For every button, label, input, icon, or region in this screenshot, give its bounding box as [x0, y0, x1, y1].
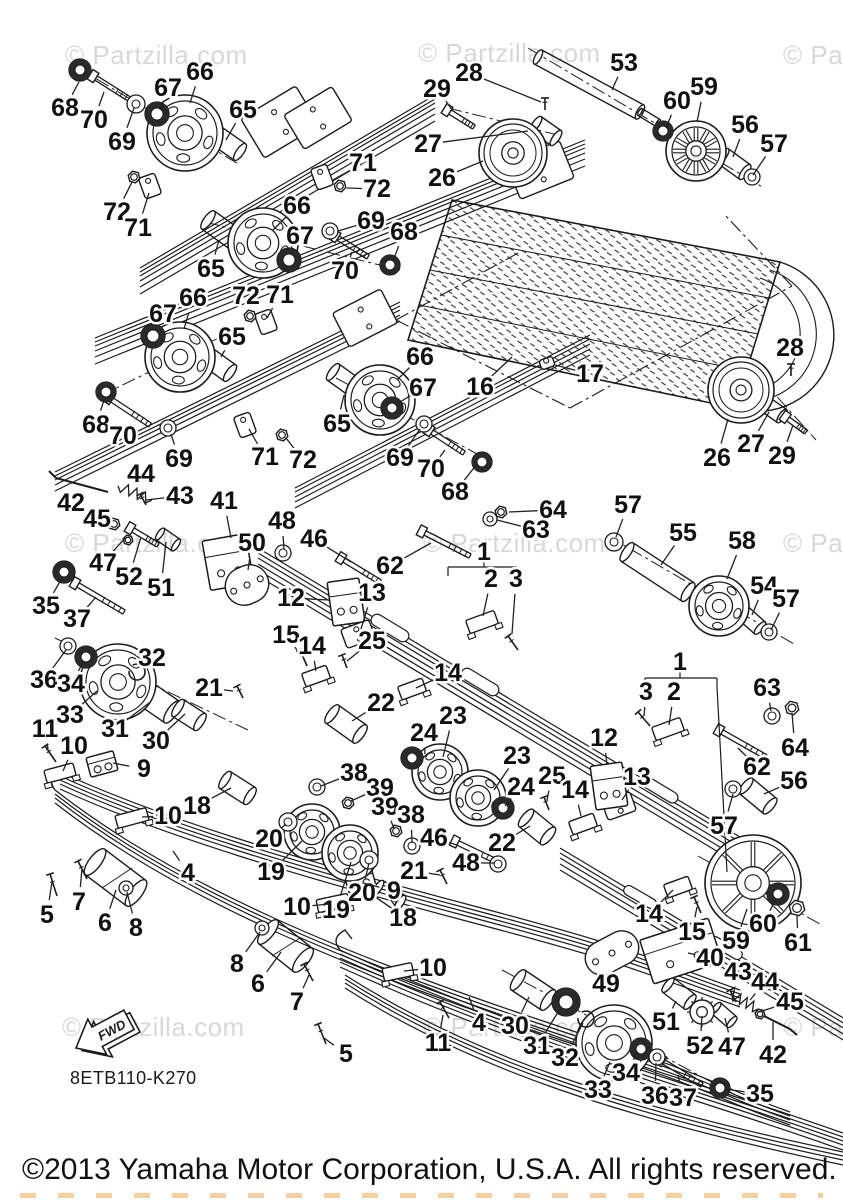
callout-14[interactable]: 14 — [434, 659, 462, 687]
callout-56[interactable]: 56 — [731, 111, 759, 139]
callout-48[interactable]: 48 — [268, 507, 296, 535]
callout-leader — [49, 882, 52, 900]
callout-43[interactable]: 43 — [724, 958, 752, 986]
callout-26[interactable]: 26 — [703, 444, 731, 472]
callout-leader — [163, 542, 166, 573]
callout-45[interactable]: 45 — [776, 988, 804, 1016]
callout-20[interactable]: 20 — [348, 879, 376, 907]
callout-15[interactable]: 15 — [272, 621, 300, 649]
callout-21[interactable]: 21 — [400, 857, 428, 885]
callout-14[interactable]: 14 — [635, 900, 663, 928]
callout-36[interactable]: 36 — [641, 1082, 669, 1110]
callout-29[interactable]: 29 — [768, 442, 796, 470]
callout-22[interactable]: 22 — [367, 689, 395, 717]
callout-65[interactable]: 65 — [229, 96, 257, 124]
callout-leader — [146, 498, 165, 500]
callout-68[interactable]: 68 — [441, 478, 469, 506]
callout-27[interactable]: 27 — [737, 430, 765, 458]
callout-24[interactable]: 24 — [507, 773, 535, 801]
callout-47[interactable]: 47 — [89, 549, 117, 577]
callout-30[interactable]: 30 — [142, 727, 170, 755]
callout-5[interactable]: 5 — [339, 1040, 353, 1068]
callout-36[interactable]: 36 — [30, 666, 58, 694]
callout-leader — [612, 77, 618, 90]
callout-66[interactable]: 66 — [406, 343, 434, 371]
callout-leader — [80, 868, 82, 887]
callout-leader — [721, 419, 728, 444]
callout-leader — [227, 516, 231, 538]
callout-37[interactable]: 37 — [63, 605, 91, 633]
callout-70[interactable]: 70 — [331, 257, 359, 285]
callout-65[interactable]: 65 — [197, 255, 225, 283]
callout-leader — [509, 511, 538, 512]
callout-17[interactable]: 17 — [576, 360, 604, 388]
callout-35[interactable]: 35 — [746, 1080, 774, 1108]
callout-leader — [173, 851, 180, 861]
callout-1[interactable]: 1 — [477, 538, 491, 566]
callout-34[interactable]: 34 — [612, 1059, 640, 1087]
callout-19[interactable]: 19 — [322, 896, 350, 924]
callout-leader — [303, 975, 309, 988]
callout-47[interactable]: 47 — [718, 1033, 746, 1061]
callout-72[interactable]: 72 — [289, 446, 317, 474]
callout-67[interactable]: 67 — [286, 222, 314, 250]
callout-leader — [47, 744, 48, 749]
callout-leader — [72, 82, 79, 95]
callout-67[interactable]: 67 — [149, 300, 177, 328]
callout-18[interactable]: 18 — [389, 904, 417, 932]
callout-leader — [497, 520, 521, 526]
copyright-footer: ©2013 Yamaha Motor Corporation, U.S.A. A… — [22, 1153, 837, 1187]
callout-28[interactable]: 28 — [455, 59, 483, 87]
callout-46[interactable]: 46 — [420, 824, 448, 852]
callout-7[interactable]: 7 — [290, 988, 304, 1016]
callout-66[interactable]: 66 — [186, 58, 214, 86]
callout-32[interactable]: 32 — [138, 644, 166, 672]
callout-leader — [787, 425, 793, 442]
callout-41[interactable]: 41 — [210, 487, 238, 515]
callout-62[interactable]: 62 — [376, 552, 404, 580]
callout-1[interactable]: 1 — [673, 648, 687, 676]
callout-22[interactable]: 22 — [488, 829, 516, 857]
callout-29[interactable]: 29 — [423, 75, 451, 103]
callout-leader — [644, 707, 645, 716]
callout-10[interactable]: 10 — [283, 893, 311, 921]
callout-20[interactable]: 20 — [255, 825, 283, 853]
callout-63[interactable]: 63 — [753, 674, 781, 702]
callout-leader — [124, 182, 132, 199]
callout-37[interactable]: 37 — [669, 1084, 697, 1112]
callout-68[interactable]: 68 — [390, 218, 418, 246]
callout-59[interactable]: 59 — [690, 73, 718, 101]
callout-69[interactable]: 69 — [165, 445, 193, 473]
callout-13[interactable]: 13 — [358, 579, 386, 607]
fwd-arrow-icon: FWD — [67, 1000, 145, 1070]
callout-70[interactable]: 70 — [80, 106, 108, 134]
callout-31[interactable]: 31 — [523, 1032, 551, 1060]
callout-59[interactable]: 59 — [722, 927, 750, 955]
callout-40[interactable]: 40 — [696, 944, 724, 972]
callout-leader — [727, 555, 736, 579]
callout-23[interactable]: 23 — [439, 702, 467, 730]
callout-35[interactable]: 35 — [32, 592, 60, 620]
callout-45[interactable]: 45 — [83, 505, 111, 533]
callout-7[interactable]: 7 — [72, 888, 86, 916]
callout-leader — [753, 156, 766, 175]
callout-50[interactable]: 50 — [238, 529, 266, 557]
callout-70[interactable]: 70 — [109, 422, 137, 450]
callout-51[interactable]: 51 — [652, 1008, 680, 1036]
callout-6[interactable]: 6 — [251, 970, 265, 998]
callout-57[interactable]: 57 — [772, 585, 800, 613]
callout-16[interactable]: 16 — [466, 373, 494, 401]
callout-64[interactable]: 64 — [781, 734, 809, 762]
callout-64[interactable]: 64 — [539, 496, 567, 524]
callout-33[interactable]: 33 — [584, 1076, 612, 1104]
callout-49[interactable]: 49 — [592, 970, 620, 998]
callout-leader — [661, 545, 675, 565]
callout-10[interactable]: 10 — [154, 802, 182, 830]
callout-14[interactable]: 14 — [298, 632, 326, 660]
callout-13[interactable]: 13 — [623, 763, 651, 791]
callout-26[interactable]: 26 — [428, 164, 456, 192]
callout-43[interactable]: 43 — [166, 482, 194, 510]
callout-48[interactable]: 48 — [452, 849, 480, 877]
callout-leader — [606, 753, 607, 765]
callout-9[interactable]: 9 — [137, 755, 151, 783]
callout-leader — [99, 92, 104, 106]
callout-2[interactable]: 2 — [484, 565, 498, 593]
callout-leader — [133, 537, 141, 563]
callout-24[interactable]: 24 — [410, 719, 438, 747]
callout-52[interactable]: 52 — [115, 563, 143, 591]
callout-57[interactable]: 57 — [614, 491, 642, 519]
callout-3[interactable]: 3 — [639, 678, 653, 706]
callout-65[interactable]: 65 — [323, 410, 351, 438]
callout-68[interactable]: 68 — [51, 94, 79, 122]
callout-leader — [403, 543, 431, 559]
callout-leader — [655, 1063, 656, 1081]
callout-leader — [578, 805, 581, 816]
callout-61[interactable]: 61 — [784, 929, 812, 957]
callout-10[interactable]: 10 — [60, 732, 88, 760]
callout-11[interactable]: 11 — [425, 1029, 452, 1057]
callout-71[interactable]: 71 — [266, 281, 294, 309]
callout-67[interactable]: 67 — [154, 74, 182, 102]
callout-46[interactable]: 46 — [300, 525, 328, 553]
callout-3[interactable]: 3 — [509, 565, 523, 593]
callout-72[interactable]: 72 — [363, 175, 391, 203]
callout-11[interactable]: 11 — [32, 715, 59, 743]
callout-4[interactable]: 4 — [472, 1009, 486, 1037]
callout-42[interactable]: 42 — [759, 1041, 787, 1069]
callout-52[interactable]: 52 — [686, 1032, 714, 1060]
callout-69[interactable]: 69 — [357, 207, 385, 235]
callout-60[interactable]: 60 — [749, 910, 777, 938]
callout-44[interactable]: 44 — [127, 460, 155, 488]
callout-33[interactable]: 33 — [56, 701, 84, 729]
callout-72[interactable]: 72 — [232, 282, 260, 310]
callout-56[interactable]: 56 — [780, 767, 808, 795]
callout-51[interactable]: 51 — [147, 574, 175, 602]
callout-15[interactable]: 15 — [678, 918, 706, 946]
callout-71[interactable]: 71 — [349, 149, 377, 177]
callout-65[interactable]: 65 — [218, 323, 246, 351]
callout-2[interactable]: 2 — [667, 678, 681, 706]
callout-31[interactable]: 31 — [101, 715, 129, 743]
callout-53[interactable]: 53 — [610, 49, 638, 77]
callout-57[interactable]: 57 — [760, 130, 788, 158]
callout-leader — [341, 395, 344, 409]
callout-69[interactable]: 69 — [108, 128, 136, 156]
callout-71[interactable]: 71 — [124, 214, 152, 242]
artifact-line — [20, 1193, 823, 1198]
callout-55[interactable]: 55 — [669, 519, 697, 547]
callout-60[interactable]: 60 — [663, 87, 691, 115]
callout-12[interactable]: 12 — [277, 584, 305, 612]
callout-leader — [483, 79, 541, 102]
callout-leader — [512, 594, 515, 634]
callout-leader — [695, 907, 697, 917]
callout-68[interactable]: 68 — [82, 411, 110, 439]
callout-42[interactable]: 42 — [57, 489, 85, 517]
callout-28[interactable]: 28 — [776, 334, 804, 362]
callout-leader — [338, 225, 357, 231]
callout-9[interactable]: 9 — [387, 877, 401, 905]
callout-leader — [347, 188, 362, 189]
callout-58[interactable]: 58 — [728, 527, 756, 555]
diagram-canvas: FWD6667687069657271292827265359605657717… — [0, 0, 843, 1200]
callout-71[interactable]: 71 — [251, 443, 279, 471]
callout-leader — [110, 890, 116, 909]
callout-8[interactable]: 8 — [230, 950, 244, 978]
callout-44[interactable]: 44 — [751, 968, 779, 996]
callout-leader — [429, 873, 440, 875]
callout-leader — [224, 690, 233, 691]
callout-57[interactable]: 57 — [710, 812, 738, 840]
callout-23[interactable]: 23 — [503, 742, 531, 770]
parts-diagram-page: © Partzilla.com© Partzilla.com© Partzill… — [0, 0, 843, 1200]
callout-21[interactable]: 21 — [195, 674, 223, 702]
callout-8[interactable]: 8 — [129, 914, 143, 942]
callout-12[interactable]: 12 — [590, 724, 618, 752]
callout-19[interactable]: 19 — [257, 858, 285, 886]
callout-66[interactable]: 66 — [179, 284, 207, 312]
callout-69[interactable]: 69 — [386, 444, 414, 472]
callout-27[interactable]: 27 — [414, 130, 442, 158]
callout-leader — [351, 794, 366, 801]
callout-6[interactable]: 6 — [98, 909, 112, 937]
callout-62[interactable]: 62 — [743, 753, 771, 781]
diagram-code: 8ETB110-K270 — [70, 1068, 197, 1089]
callout-leader — [697, 102, 701, 122]
callout-14[interactable]: 14 — [561, 776, 589, 804]
callout-38[interactable]: 38 — [340, 759, 368, 787]
callout-leader — [441, 1015, 443, 1028]
callout-66[interactable]: 66 — [283, 192, 311, 220]
callout-leader — [171, 434, 174, 445]
callout-39[interactable]: 39 — [371, 793, 399, 821]
callout-5[interactable]: 5 — [40, 901, 54, 929]
callout-18[interactable]: 18 — [183, 792, 211, 820]
callout-leader — [456, 161, 483, 172]
callout-32[interactable]: 32 — [551, 1044, 579, 1072]
callout-10[interactable]: 10 — [419, 954, 447, 982]
callout-leader — [792, 713, 794, 733]
callout-34[interactable]: 34 — [57, 670, 85, 698]
callout-25[interactable]: 25 — [358, 627, 386, 655]
callout-67[interactable]: 67 — [409, 374, 437, 402]
callout-4[interactable]: 4 — [181, 859, 195, 887]
callout-leader — [469, 997, 474, 1009]
